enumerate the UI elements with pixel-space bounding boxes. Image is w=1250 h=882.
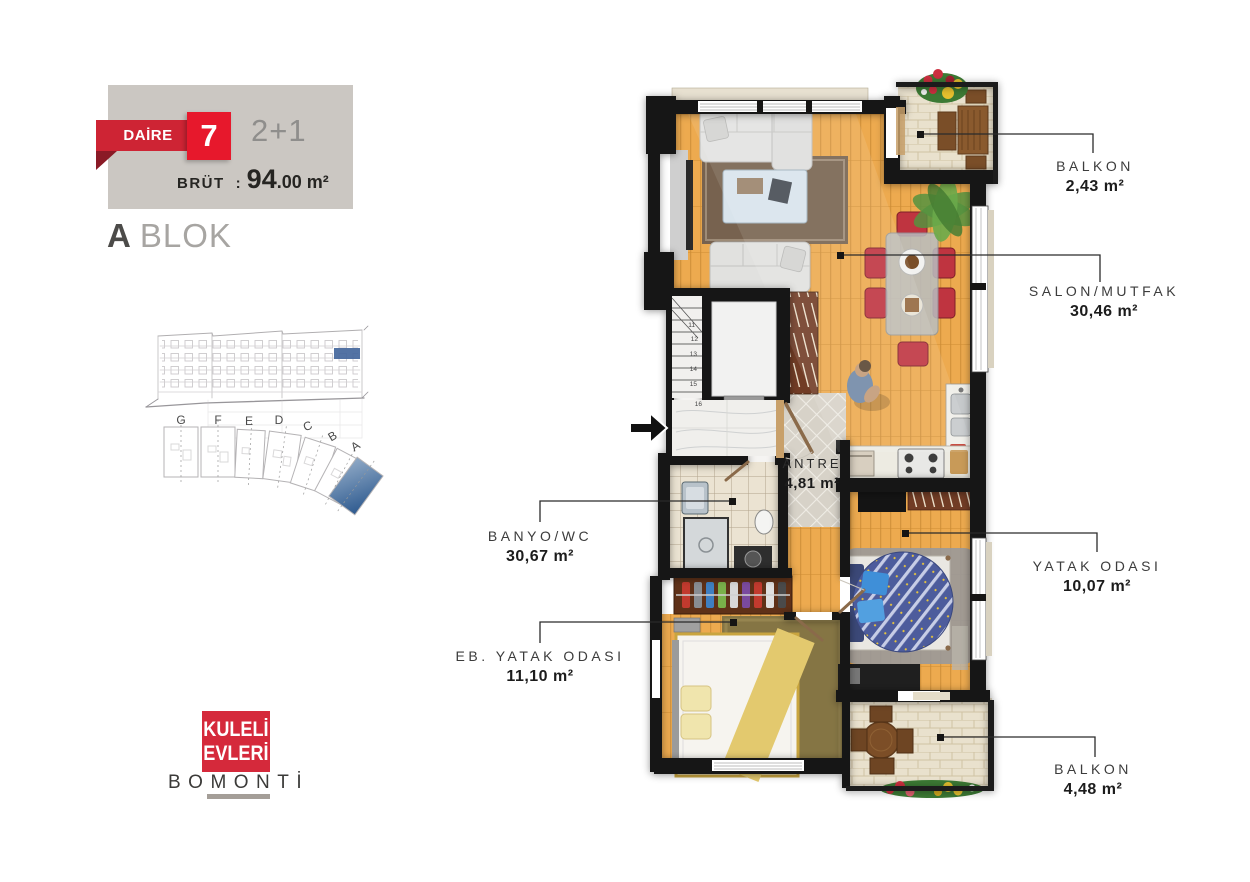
wardrobe-clothes <box>674 576 792 614</box>
stair-number: 11 <box>688 322 695 329</box>
stair-number: 16 <box>695 401 703 408</box>
siteplan-sketch: G F E D C B A <box>164 413 387 520</box>
room-name: SALON/MUTFAK <box>1015 283 1193 300</box>
room-area: 4,48 m² <box>1008 781 1178 799</box>
stair-number: 15 <box>690 381 698 388</box>
logo-underline <box>207 794 270 799</box>
gross-area-value: 94 <box>247 164 277 195</box>
block-letter-g: G <box>176 413 185 427</box>
stairs-elevator <box>672 296 780 456</box>
gross-area-label: BRÜT <box>177 175 225 192</box>
gross-area-colon: : <box>236 175 241 192</box>
master-bedroom-furniture <box>672 616 844 782</box>
logo-line1: KULELİ <box>203 718 268 742</box>
room-area: 30,67 m² <box>455 548 625 566</box>
floorplan-brochure-page: G F E D C B A <box>0 0 1250 882</box>
label-eb-yatak-odasi: EB. YATAK ODASI 11,10 m² <box>455 648 625 686</box>
label-banyo-wc: BANYO/WC 30,67 m² <box>455 528 625 566</box>
logo-city: BOMONTİ <box>168 772 309 794</box>
unit-number-badge: 7 <box>187 112 231 160</box>
block-word: BLOK <box>140 217 232 254</box>
block-letter-e: E <box>245 414 253 428</box>
gross-area-unit: .00 m² <box>277 172 329 193</box>
stair-number: 13 <box>690 351 698 358</box>
stair-number: 12 <box>691 336 699 343</box>
block-letter-b: B <box>326 428 340 444</box>
stair-number: 14 <box>690 366 698 373</box>
block-letter-d: D <box>275 413 284 427</box>
label-yatak-odasi: YATAK ODASI 10,07 m² <box>1012 558 1182 596</box>
block-letter-a: A <box>348 438 363 454</box>
block-title: ABLOK <box>107 217 232 255</box>
room-name: BALKON <box>1010 158 1180 175</box>
room-name: ANTRE <box>758 455 866 472</box>
label-balkon-bottom: BALKON 4,48 m² <box>1008 761 1178 799</box>
daire-ribbon: DAİRE <box>96 120 188 151</box>
label-antre: ANTRE 4,81 m² <box>758 455 866 492</box>
label-balkon-top: BALKON 2,43 m² <box>1010 158 1180 196</box>
block-letter-f: F <box>214 413 221 427</box>
ribbon-fold <box>96 151 117 170</box>
room-area: 11,10 m² <box>455 668 625 686</box>
room-name: BALKON <box>1008 761 1178 778</box>
room-area: 2,43 m² <box>1010 178 1180 196</box>
room-name: EB. YATAK ODASI <box>455 648 625 665</box>
room-name: BANYO/WC <box>455 528 625 545</box>
room-area: 4,81 m² <box>758 475 866 492</box>
kuleli-evleri-logo: KULELİ EVLERİ <box>202 711 270 772</box>
block-letter-c: C <box>301 418 315 434</box>
daire-ribbon-label: DAİRE <box>123 127 172 144</box>
entrance-arrow-icon <box>630 413 667 443</box>
unit-number: 7 <box>200 118 217 154</box>
room-area: 30,46 m² <box>1015 303 1193 321</box>
logo-line2: EVLERİ <box>203 742 268 766</box>
block-letter: A <box>107 217 131 254</box>
label-salon-mutfak: SALON/MUTFAK 30,46 m² <box>1015 283 1193 321</box>
gross-area-row: BRÜT : 94 .00 m² <box>177 164 329 195</box>
room-area: 10,07 m² <box>1012 578 1182 596</box>
room-config: 2+1 <box>251 113 307 149</box>
room-name: YATAK ODASI <box>1012 558 1182 575</box>
